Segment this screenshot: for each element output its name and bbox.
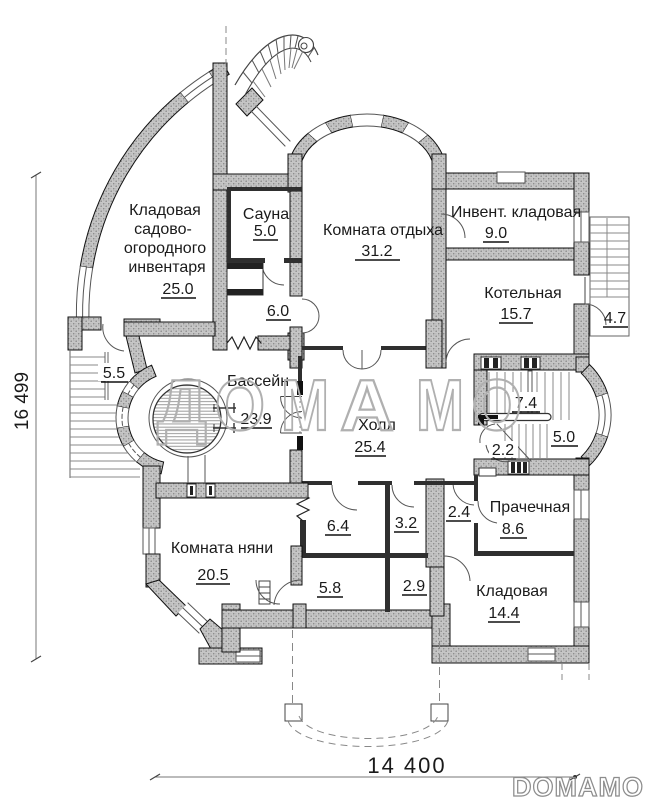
svg-text:М: М [416,366,464,446]
svg-text:Прачечная: Прачечная [490,499,570,516]
svg-text:Котельная: Котельная [484,285,561,302]
svg-text:2.4: 2.4 [448,504,470,521]
svg-text:8.6: 8.6 [502,521,524,538]
svg-text:Инвент. кладовая: Инвент. кладовая [451,204,581,221]
svg-text:садово-: садово- [134,221,192,238]
svg-text:31.2: 31.2 [361,243,392,260]
svg-text:Сауна: Сауна [243,206,289,223]
svg-text:огородного: огородного [124,240,206,257]
svg-text:А: А [340,366,394,446]
svg-text:2.9: 2.9 [403,578,425,595]
svg-text:14 400: 14 400 [367,753,446,778]
svg-text:25.0: 25.0 [162,281,193,298]
svg-text:Д: Д [157,366,207,446]
svg-text:20.5: 20.5 [197,567,228,584]
svg-text:Кладовая: Кладовая [476,583,548,600]
svg-text:Кладовая: Кладовая [129,202,201,219]
svg-text:9.0: 9.0 [485,225,507,242]
svg-text:инвентаря: инвентаря [128,259,205,276]
svg-text:14.4: 14.4 [488,605,519,622]
svg-text:5.5: 5.5 [103,365,125,382]
svg-text:М: М [281,366,329,446]
svg-text:Комната няни: Комната няни [171,540,273,557]
svg-text:3.2: 3.2 [395,515,417,532]
svg-text:16 499: 16 499 [12,372,33,430]
svg-text:6.0: 6.0 [267,303,289,320]
svg-text:О: О [472,366,522,446]
svg-text:6.4: 6.4 [327,518,349,535]
svg-text:Комната отдыха: Комната отдыха [323,222,443,239]
svg-text:5.0: 5.0 [254,223,276,240]
svg-text:5.0: 5.0 [553,429,575,446]
svg-text:DOMAMO: DOMAMO [512,772,644,800]
svg-text:4.7: 4.7 [604,310,626,327]
svg-text:5.8: 5.8 [319,580,341,597]
svg-text:О: О [215,366,265,446]
svg-text:15.7: 15.7 [500,306,531,323]
